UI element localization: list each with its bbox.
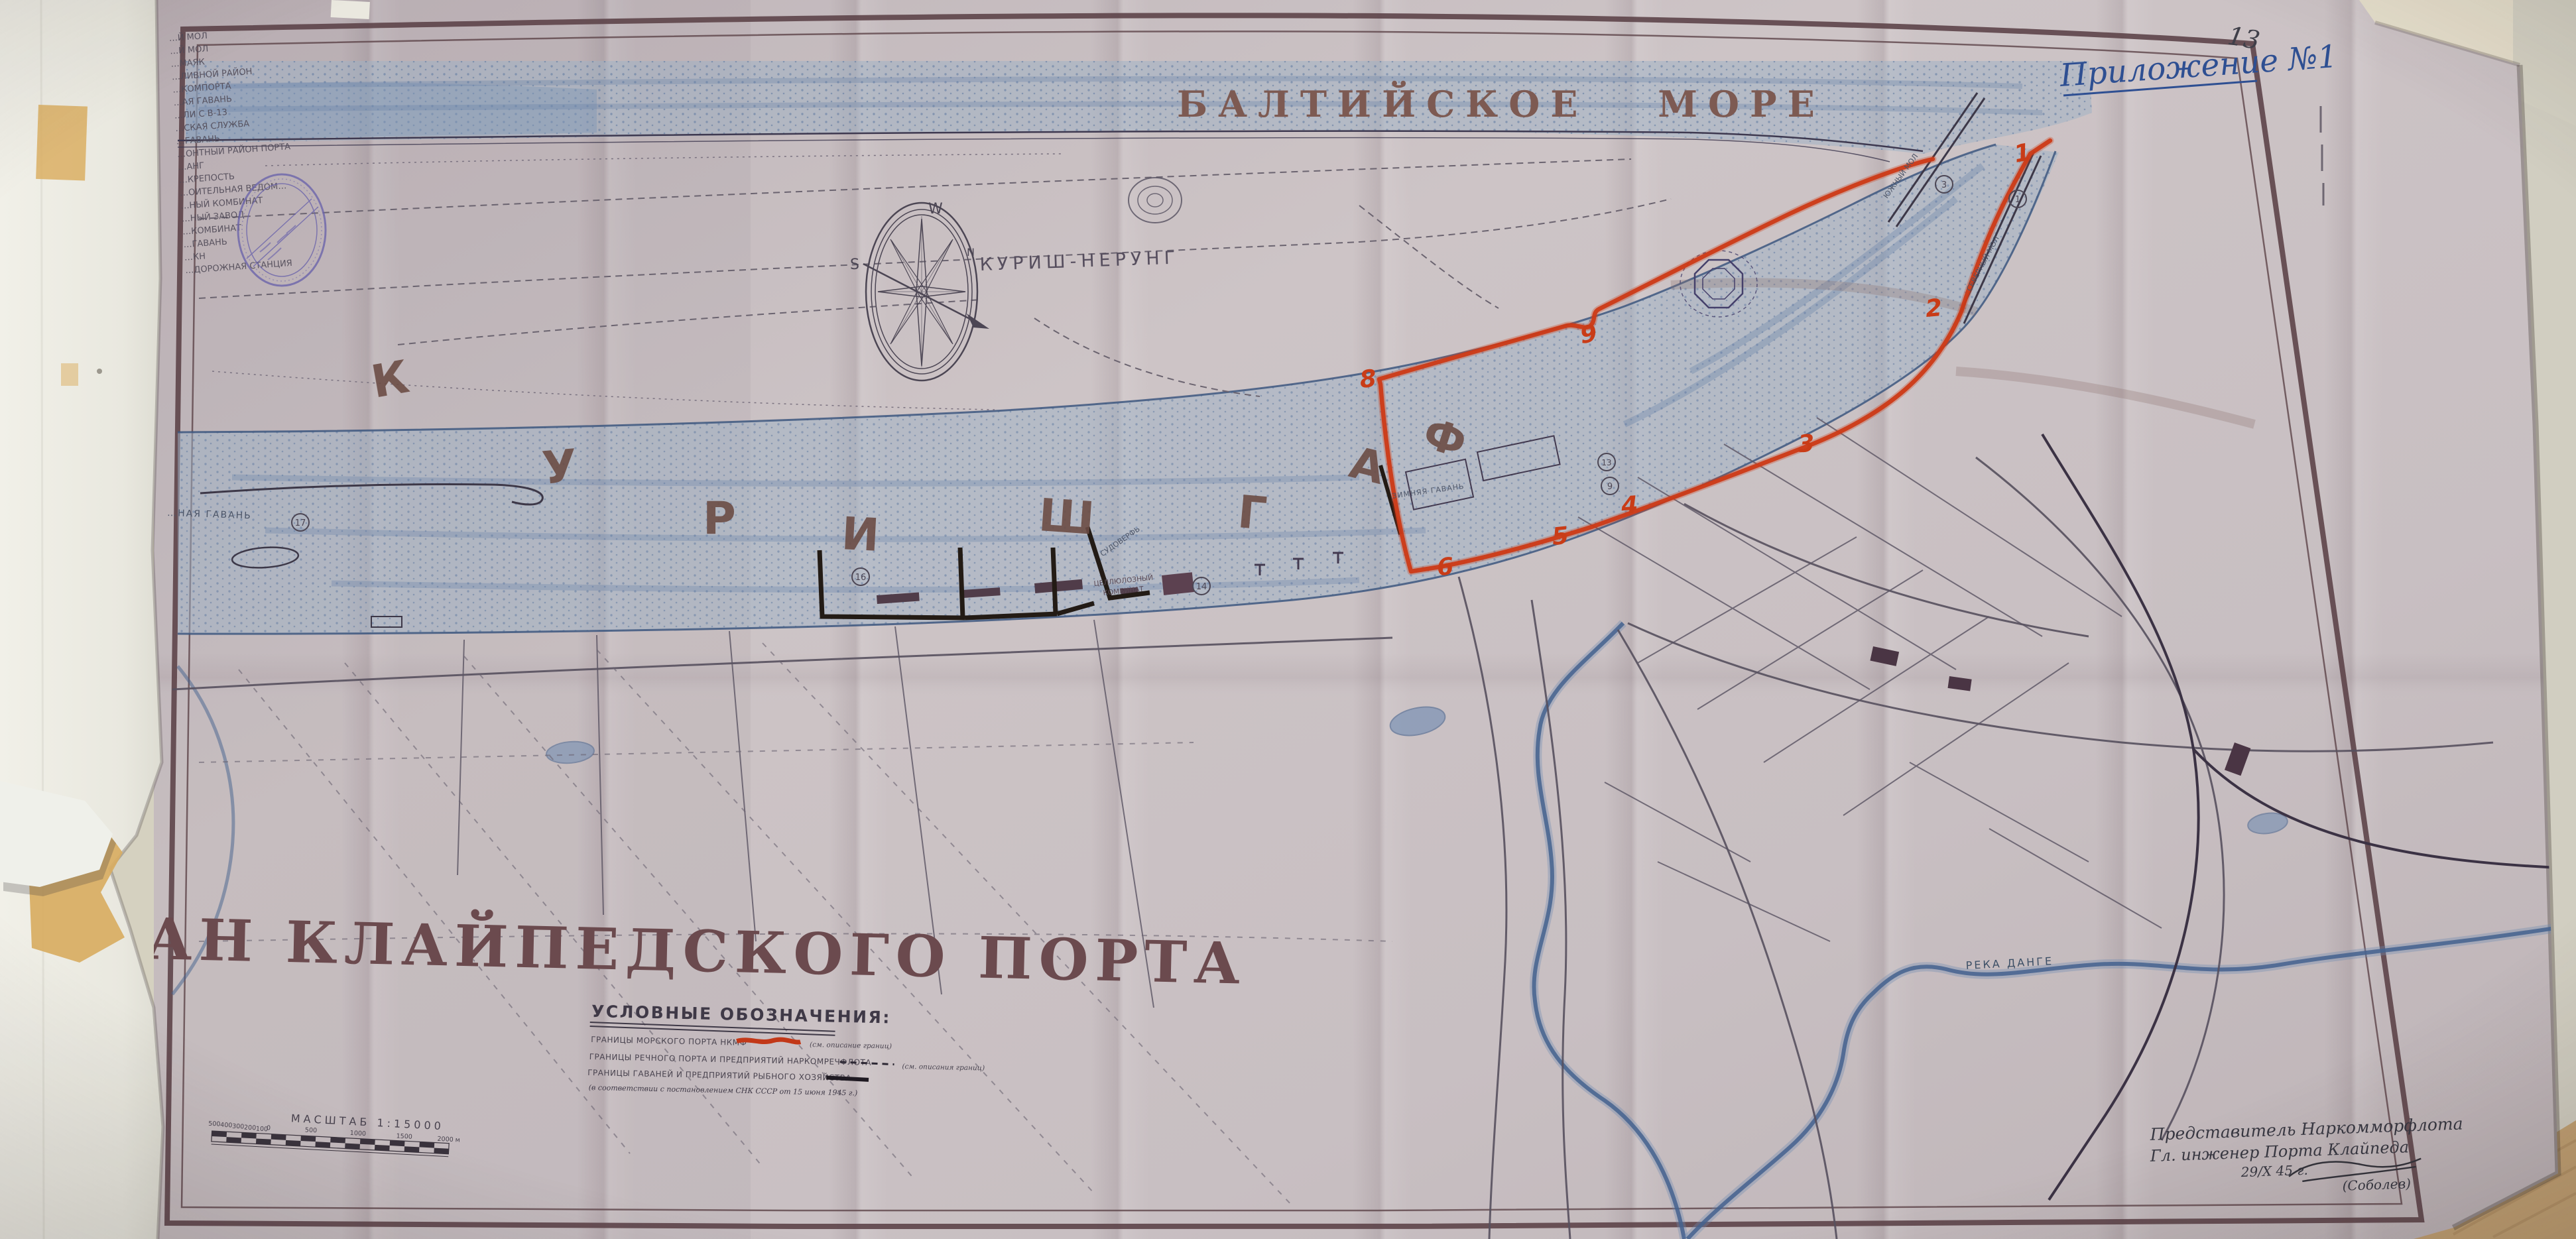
archival-map-photo: 1 2 3 4 5 6 8 9 17 16 14 — [0, 0, 2576, 1239]
photo-vignette — [0, 0, 2576, 1239]
